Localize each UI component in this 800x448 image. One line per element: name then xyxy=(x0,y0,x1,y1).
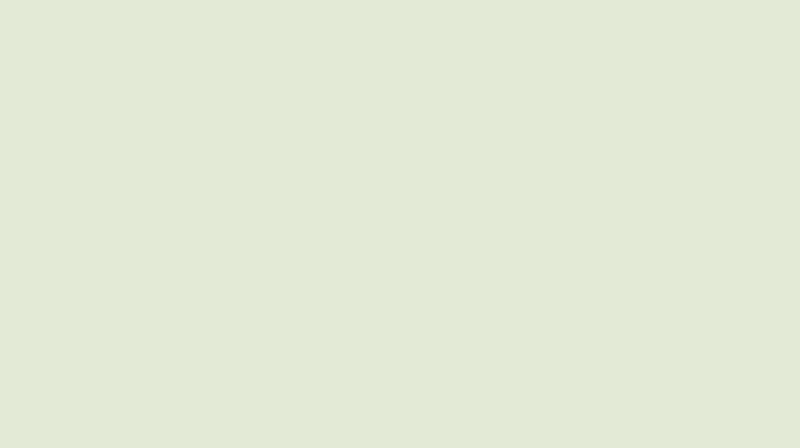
aerial-site-rendering xyxy=(0,0,800,448)
